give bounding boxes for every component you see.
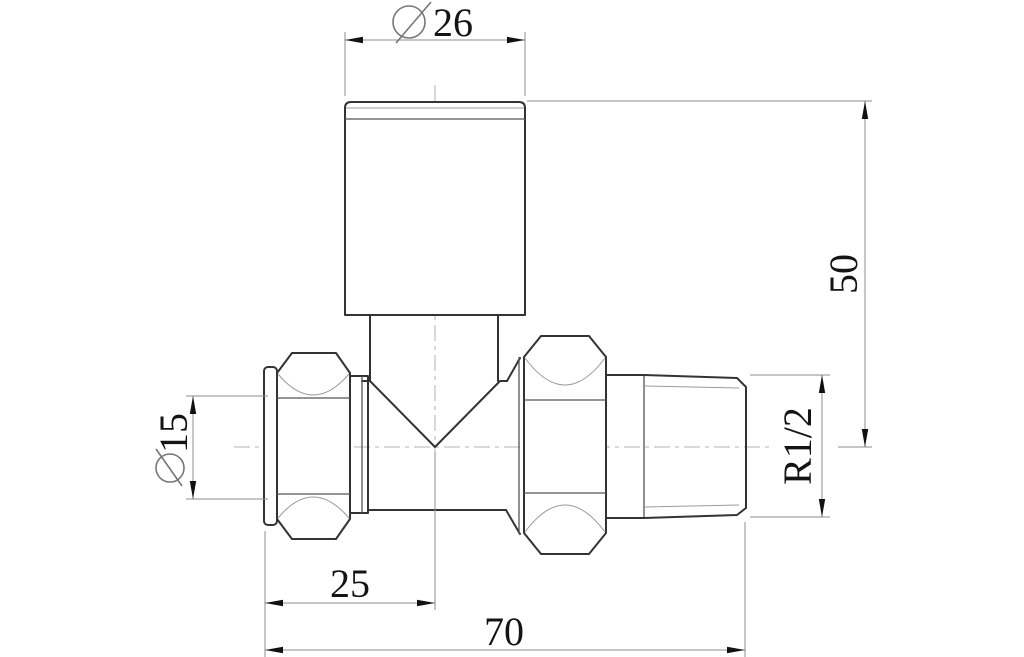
diameter-symbol [156,449,184,486]
arrowhead-down [819,499,825,517]
dim-cap-diameter: 26 [345,0,525,96]
arrowhead-down [862,429,868,447]
arrowhead-right [727,647,745,653]
compression-nut-left [264,353,350,539]
arrowhead-up [190,396,196,414]
arrowhead-left [345,37,363,43]
diameter-symbol-circle [393,6,425,38]
union-hex-outline [524,336,606,554]
thread-minor-bottom [645,505,739,507]
dim-thread-size: R1/2 [750,375,830,517]
arrowhead-left [265,600,283,606]
arrowhead-right [417,600,435,606]
nut-end-cap [264,367,277,525]
arrowhead-down [190,481,196,499]
valve-technical-drawing: 26 15 50 R1/2 25 [0,0,1024,657]
dim-pipe-diameter: 15 [151,396,268,499]
dim-text-thread: R1/2 [775,407,820,485]
hex-nut-outline [277,353,350,539]
valve-cap [345,102,525,315]
dim-text-height: 50 [821,254,866,294]
dim-text-pipe-diameter: 15 [151,413,196,453]
dim-text-25: 25 [330,561,370,606]
valve-cap-outline [345,102,525,315]
dim-text-cap-diameter: 26 [433,0,473,45]
arrowhead-up [819,375,825,393]
cone-bottom-edge [506,510,520,534]
union-nut-right [524,336,606,554]
drawing-sheet: 26 15 50 R1/2 25 [0,0,1024,657]
dim-text-70: 70 [484,609,524,654]
arrowhead-left [265,647,283,653]
thread-minor-top [645,386,739,388]
cone-top-edge [507,358,520,381]
arrowhead-up [862,101,868,119]
arrowhead-right [507,37,525,43]
left-flange-ring [350,376,368,513]
diameter-symbol [393,2,431,43]
